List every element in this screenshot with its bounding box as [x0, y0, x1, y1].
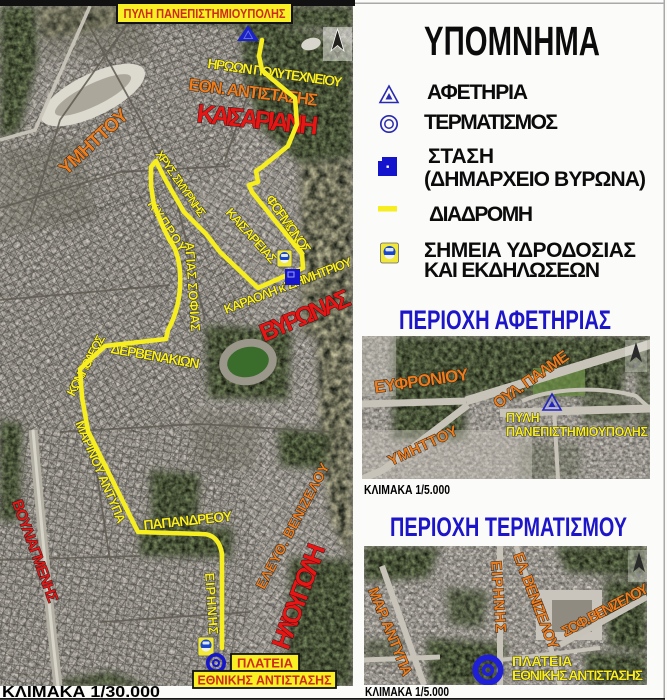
- svg-text:ΠΑΝΕΠΙΣΤΗΜΙΟΥΠΟΛΗΣ: ΠΑΝΕΠΙΣΤΗΜΙΟΥΠΟΛΗΣ: [506, 425, 648, 439]
- svg-text:ΣΤΑΣΗ: ΣΤΑΣΗ: [428, 145, 494, 168]
- svg-text:ΑΦΕΤΗΡΙΑ: ΑΦΕΤΗΡΙΑ: [427, 81, 528, 104]
- svg-text:ΕΘΝΙΚΗΣ ΑΝΤΙΣΤΑΣΗΣ: ΕΘΝΙΚΗΣ ΑΝΤΙΣΤΑΣΗΣ: [198, 673, 332, 688]
- svg-text:ΠΥΛΗ ΠΑΝΕΠΙΣΤΗΜΙΟΥΠΟΛΗΣ: ΠΥΛΗ ΠΑΝΕΠΙΣΤΗΜΙΟΥΠΟΛΗΣ: [124, 7, 286, 21]
- svg-text:ΥΠΟΜΝΗΜΑ: ΥΠΟΜΝΗΜΑ: [424, 18, 600, 64]
- svg-text:ΕΘΝΙΚΗΣ ΑΝΤΙΣΤΑΣΗΣ: ΕΘΝΙΚΗΣ ΑΝΤΙΣΤΑΣΗΣ: [512, 667, 643, 683]
- svg-text:ΤΕΡΜΑΤΙΣΜΟΣ: ΤΕΡΜΑΤΙΣΜΟΣ: [424, 111, 558, 134]
- svg-text:ΠΛΑΤΕΙΑ: ΠΛΑΤΕΙΑ: [237, 656, 294, 671]
- svg-text:ΚΛΙΜΑΚΑ 1/5.000: ΚΛΙΜΑΚΑ 1/5.000: [364, 482, 450, 497]
- svg-text:ΚΛΙΜΑΚΑ 1/5.000: ΚΛΙΜΑΚΑ 1/5.000: [365, 684, 449, 699]
- svg-text:ΚΑΙ ΕΚΔΗΛΩΣΕΩΝ: ΚΑΙ ΕΚΔΗΛΩΣΕΩΝ: [424, 259, 600, 282]
- svg-text:ΠΕΡΙΟΧΗ ΑΦΕΤΗΡΙΑΣ: ΠΕΡΙΟΧΗ ΑΦΕΤΗΡΙΑΣ: [399, 305, 611, 335]
- svg-text:ΔΙΑΔΡΟΜΗ: ΔΙΑΔΡΟΜΗ: [429, 203, 533, 226]
- svg-text:ΠΥΛΗ: ΠΥΛΗ: [506, 411, 540, 425]
- svg-text:ΠΕΡΙΟΧΗ ΤΕΡΜΑΤΙΣΜΟΥ: ΠΕΡΙΟΧΗ ΤΕΡΜΑΤΙΣΜΟΥ: [390, 512, 627, 542]
- svg-text:(ΔΗΜΑΡΧΕΙΟ ΒΥΡΩΝΑ): (ΔΗΜΑΡΧΕΙΟ ΒΥΡΩΝΑ): [424, 168, 646, 191]
- svg-text:ΚΛΙΜΑΚΑ 1/30.000: ΚΛΙΜΑΚΑ 1/30.000: [2, 684, 160, 700]
